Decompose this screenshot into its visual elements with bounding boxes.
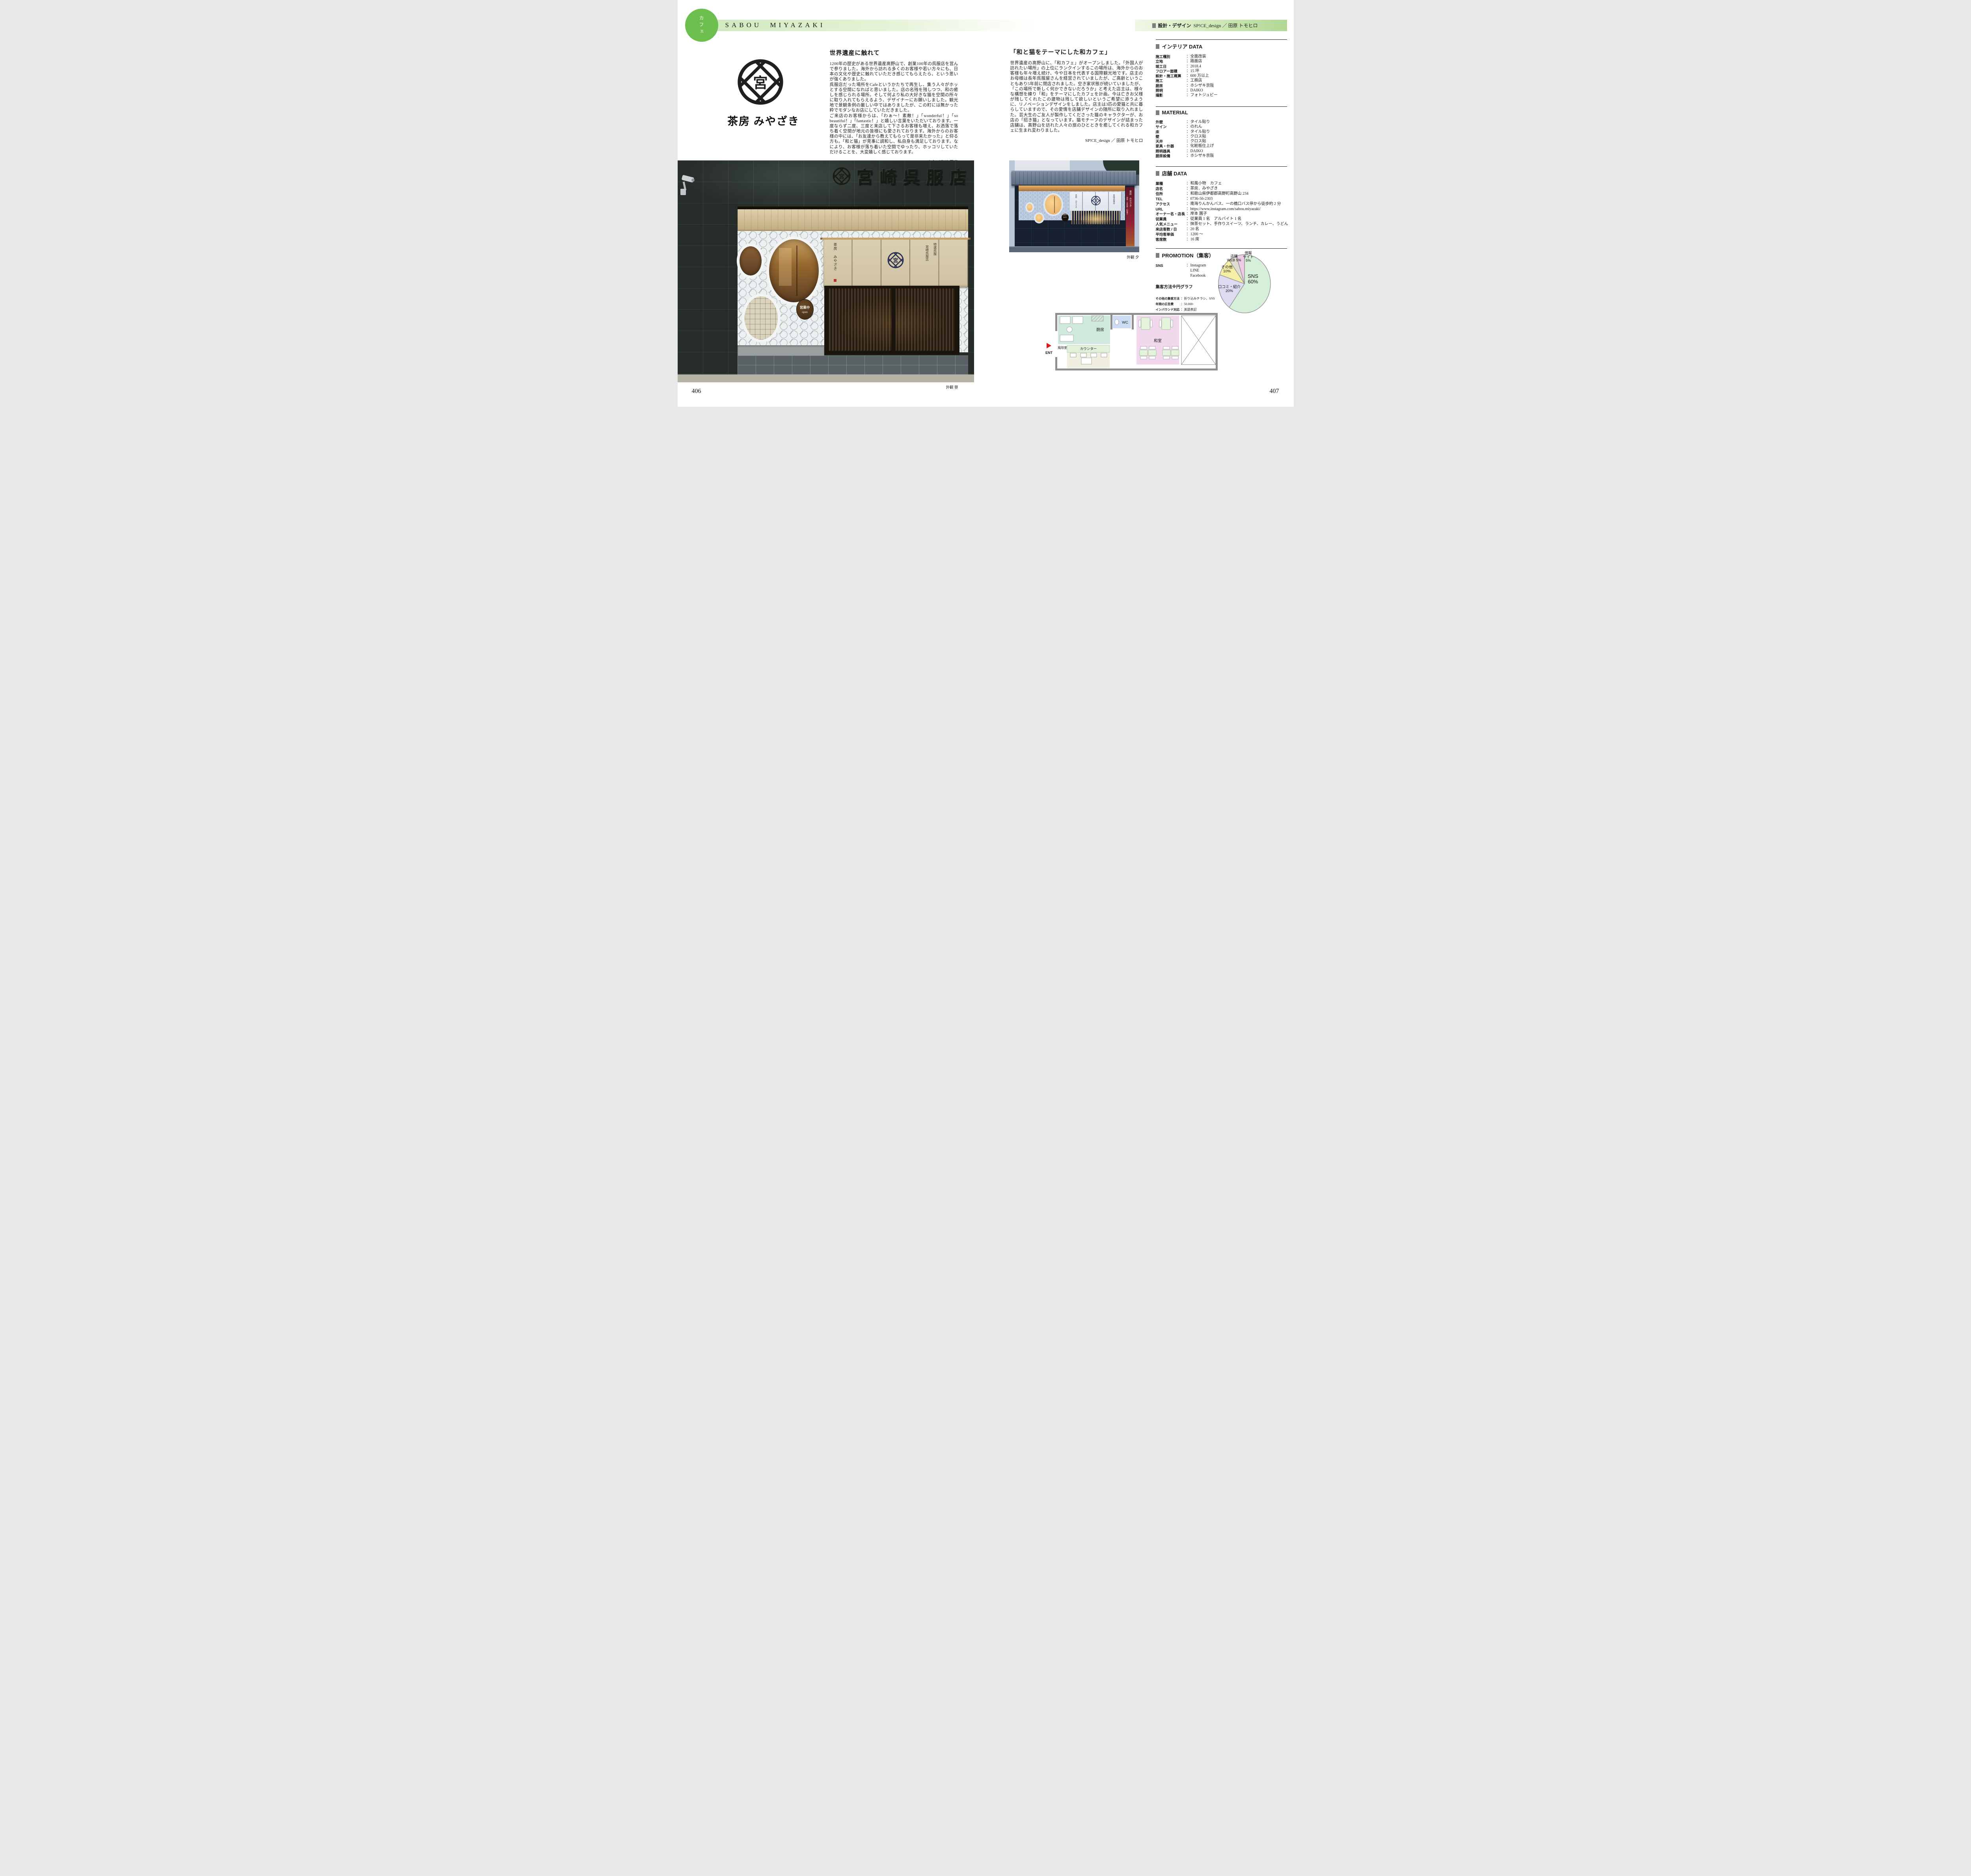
pie-slice-label: その他 10% [1221,266,1233,274]
data-row: アクセス：南海りんかんバス、一の橋口バス停から徒歩約 2 分 [1156,202,1287,207]
interior-data-heading: インテリア DATA [1156,43,1287,50]
data-row: 施工種別：全面改装 [1156,54,1287,59]
data-row: 年間の広告費：50.000- [1156,301,1219,307]
interior-data-rows: 施工種別：全面改装立地：路面店竣工日：2018.4フロアー面積：15 坪設計・施… [1156,54,1287,98]
storefront-sign-text: 宮崎呉服店 [857,164,973,188]
owner-article-title: 世界遺産に触れて [830,48,958,57]
row-value: 50.000- [1184,301,1194,307]
row-value: のれん [1190,125,1202,129]
row-label: TEL [1156,197,1187,202]
floor-plan: 厨房 WC カウンター 和室 風除室 ENT [1045,311,1230,378]
security-camera-icon [680,173,698,197]
miyazaki-crest-icon [887,251,904,269]
storefront-day-photo: 宮崎呉服店 営業中 open 茶房 みやざき 特選呉服 宮崎呉服店 [678,160,974,382]
row-label: フロアー面積 [1156,69,1187,74]
owner-article-body: 1200年の歴史がある世界遺産高野山で、創業100年の呉服店を営んで参りました。… [830,61,958,155]
row-value: ホシザキ京阪 [1190,84,1214,88]
red-banner: 茶房 みやざき ・抹茶・日本茶・和菓子 [1126,187,1135,249]
row-value: 0736-56-2303 [1190,197,1213,202]
row-label: 従業員 [1156,217,1187,222]
interior-data-section: インテリア DATA 施工種別：全面改装立地：路面店竣工日：2018.4フロアー… [1156,39,1287,98]
noren-text-left: 茶房 みやざき [833,243,838,285]
row-label: その他の集客方法 [1156,296,1181,301]
data-row: TEL：0736-56-2303 [1156,197,1287,202]
section-marker-icon [1156,110,1159,115]
data-row: 人気メニュー：抹茶セット、手作りスイーツ、ランチ、カレー、うどん [1156,222,1287,227]
day-photo-caption: 外観 昼 [927,384,958,390]
pie-slice-label: 店舗 WEB 5% [1227,255,1241,262]
row-value: 2018.4 [1190,64,1202,69]
row-value: 15 坪 [1190,69,1200,74]
designer-article-title: 「和と猫をテーマにした和カフェ」 [1010,48,1143,56]
noren-curtain: 茶房 みやざき 宮崎呉服店 [1070,192,1122,211]
row-value: 路面店 [1190,59,1202,64]
data-row: 撮影：フォトジュピー [1156,93,1287,98]
street [1009,246,1139,252]
row-value: 南海りんかんバス、一の橋口バス停から徒歩約 2 分 [1190,202,1281,207]
shop-data-rows: 業種：和風小物 カフェ店名：茶房．みやざき住所：和歌山県伊都郡高野町高野山 23… [1156,181,1287,242]
glowing-round-window-large [1043,193,1063,216]
row-label: 来店客数 / 日 [1156,227,1187,232]
plan-label-kitchen: 厨房 [1096,327,1104,332]
credit-label: 設計・デザイン [1158,22,1191,29]
data-row: 業種：和風小物 カフェ [1156,181,1287,186]
row-value: クロス貼 [1190,134,1206,139]
row-label: 設計・施工概算 [1156,74,1187,78]
noren-text-right: 宮崎呉服店 [1112,194,1115,209]
row-value: フォトジュピー [1190,93,1218,98]
pie-slice-label: SNS 60% [1248,274,1258,285]
list-item: Facebook [1190,274,1206,279]
material-section: MATERIAL 外壁：タイル貼りサイン：のれん床：タイル貼り壁：クロス貼天井：… [1156,106,1287,158]
brand-name: 茶房 みやざき [720,113,807,128]
section-marker-icon [1156,171,1159,176]
row-label: 立地 [1156,59,1187,64]
shop-data-heading: 店舗 DATA [1156,169,1287,177]
row-label: 人気メニュー [1156,222,1187,227]
data-row: 天井：クロス貼 [1156,139,1287,144]
row-label: 店名 [1156,186,1187,192]
promotion-heading: PROMOTION（集客） [1156,251,1219,259]
row-label: 厨房 [1156,84,1187,88]
section-marker-icon [1152,23,1156,28]
sidewalk [678,374,974,382]
data-row: URL：https://www.instagram.com/sabou.miya… [1156,207,1287,212]
data-row: 客席数：16 席 [1156,237,1287,242]
row-label: 照明器具 [1156,149,1187,154]
row-value: タイル貼り [1190,120,1210,125]
glowing-lattice-door [1071,211,1120,224]
row-value: DAIKO [1190,149,1203,154]
row-label: 外壁 [1156,120,1187,125]
paragraph: 世界遺産の高野山に、「和カフェ」がオープンしました。「外国人が訪れたい場所」の上… [1010,61,1143,133]
plan-label-tatami: 和室 [1154,338,1162,343]
row-value: https://www.instagram.com/sabou.miyazaki… [1190,207,1261,212]
glowing-round-window-small [1025,202,1034,212]
row-label: 客席数 [1156,237,1187,242]
open-sign: 営業中 open [796,299,814,320]
list-item: Instagram [1190,263,1206,268]
row-label: 施工種別 [1156,54,1187,59]
noren-text-right-2: 宮崎呉服店 [925,245,930,283]
row-value: DAIKO [1190,88,1203,93]
sns-row: SNS ： InstagramLINEFacebook [1156,263,1219,278]
designer-article-byline: SP!CE_design ／ 田原 トモヒロ [1010,137,1143,143]
plan-label-windbreak: 風除室 [1058,346,1067,350]
row-value: 1200 ～ [1190,232,1203,237]
chart-note: 集客方法※円グラフ [1156,284,1219,290]
row-value: 岸本 園子 [1190,212,1207,217]
storefront-dusk-photo: 宮崎呉服店 営業中 open 茶房 みやざき 宮崎呉服店 茶房 みやざき ・抹茶… [1009,160,1139,252]
row-value: 抹茶セット、手作りスイーツ、ランチ、カレー、うどん [1190,222,1288,227]
section-marker-icon [1156,253,1159,258]
row-value: 和風小物 カフェ [1190,181,1222,186]
miyazaki-crest-icon [832,167,851,186]
section-marker-icon [1156,44,1159,49]
row-value: タイル貼り [1190,130,1210,134]
data-row: その他の集客方法：折り込みチラシ、SNS [1156,296,1219,301]
data-row: 照明器具：DAIKO [1156,149,1287,154]
material-rows: 外壁：タイル貼りサイン：のれん床：タイル貼り壁：クロス貼天井：クロス貼家具・什器… [1156,120,1287,158]
row-value: クロス貼 [1190,139,1206,144]
tile-pavement [738,355,968,374]
row-label: 厨房設備 [1156,154,1187,158]
plan-label-entrance: ENT [1045,351,1053,355]
page-number-left: 406 [692,388,701,395]
row-value: 折り込みチラシ、SNS [1184,296,1215,301]
miyazaki-crest-icon [736,58,785,106]
tiled-roof [1012,171,1136,186]
plan-label-wc: WC [1122,320,1128,325]
data-row: 厨房設備：ホシザキ京阪 [1156,154,1287,158]
row-label: 天井 [1156,139,1187,144]
data-row: 外壁：タイル貼り [1156,120,1287,125]
dusk-photo-caption: 外観 夕 [1109,254,1139,260]
row-label: 業種 [1156,181,1187,186]
row-label: 平均客単価 [1156,232,1187,237]
round-window-medium [742,294,781,342]
page-number-right: 407 [1270,388,1279,395]
noren-text-right-1: 特選呉服 [933,243,937,274]
data-row: 立地：路面店 [1156,59,1287,64]
row-value: 16 席 [1190,237,1200,242]
row-label: 施工 [1156,78,1187,83]
row-value: 全面改装 [1190,54,1206,59]
row-value: 茶房．みやざき [1190,186,1218,192]
row-label: 年間の広告費 [1156,301,1181,307]
noren-text-left: 茶房 みやざき [1075,194,1077,209]
data-row: フロアー面積：15 坪 [1156,69,1287,74]
data-row: 厨房：ホシザキ京阪 [1156,84,1287,88]
row-value: 従業員 1 名 アルバイト 1 名 [1190,217,1242,222]
round-window-small [737,244,764,278]
data-row: 竣工日：2018.4 [1156,64,1287,69]
storefront-bay: 営業中 open 茶房 みやざき 特選呉服 宮崎呉服店 [738,207,968,382]
data-row: 床：タイル貼り [1156,130,1287,134]
data-row: 施工：工務店 [1156,78,1287,83]
row-label: 住所 [1156,192,1187,197]
row-label: 照明 [1156,88,1187,93]
paragraph: 1200年の歴史がある世界遺産高野山で、創業100年の呉服店を営んで参りました。… [830,61,958,82]
dusk-bay: 営業中 open 茶房 みやざき 宮崎呉服店 [1019,186,1125,224]
design-credit: 設計・デザイン SP!CE_design ／ 田原 トモヒロ [1152,22,1258,29]
round-window-large [766,236,822,305]
designer-article: 「和と猫をテーマにした和カフェ」 世界遺産の高野山に、「和カフェ」がオープンしま… [1010,48,1143,143]
storefront-signage: 宮崎呉服店 [832,165,973,187]
row-value: 化粧板仕上げ [1190,144,1214,149]
plan-label-counter: カウンター [1080,347,1097,351]
designer-article-body: 世界遺産の高野山に、「和カフェ」がオープンしました。「外国人が訪れたい場所」の上… [1010,61,1143,133]
banner-subtext: ・抹茶・日本茶・和菓子 [1126,195,1129,246]
row-value: 和歌山県伊都郡高野町高野山 234 [1190,192,1249,197]
row-label: 竣工日 [1156,64,1187,69]
row-value: ホシザキ京阪 [1190,154,1214,158]
row-label: 家具・什器 [1156,144,1187,149]
row-label: 撮影 [1156,93,1187,98]
row-label: URL [1156,207,1187,212]
data-row: 住所：和歌山県伊都郡高野町高野山 234 [1156,192,1287,197]
row-value: 20 名 [1190,227,1200,232]
open-sign: 営業中 open [1062,214,1069,221]
paragraph: ご来店のお客様からは、「わぁ〜！素敵！」「wonderful！」「so beau… [830,114,958,155]
hanko-stamp-icon [834,279,836,282]
entrance-arrow-icon [1047,343,1051,348]
page-title: SABOU MIYAZAKI [725,21,825,29]
banner-text: 茶房 みやざき [1129,190,1132,238]
row-label: オーナー名・店長 [1156,212,1187,217]
promotion-pie-chart: SNS 60%口コミ・紹介 20%その他 10%店舗 WEB 5%情報 サイト … [1217,251,1272,315]
data-row: 来店客数 / 日：20 名 [1156,227,1287,232]
sns-values: InstagramLINEFacebook [1190,263,1206,278]
data-row: 壁：クロス貼 [1156,134,1287,139]
category-label: カフェ [698,15,705,35]
data-row: オーナー名・店長：岸本 園子 [1156,212,1287,217]
data-row: 店名：茶房．みやざき [1156,186,1287,192]
material-heading: MATERIAL [1156,110,1287,115]
credit-value: SP!CE_design ／ 田原 トモヒロ [1194,22,1258,29]
wooden-lattice-door [824,286,959,355]
data-row: 照明：DAIKO [1156,88,1287,93]
row-label: アクセス [1156,202,1187,207]
miyazaki-crest-icon [1091,195,1101,206]
row-value: 工務店 [1190,78,1202,83]
data-row: 設計・施工概算：600 万以上 [1156,74,1287,78]
pie-slice-label: 口コミ・紹介 20% [1218,285,1241,294]
pie-slice-label: 情報 サイト 5% [1243,251,1254,263]
row-label: サイン [1156,125,1187,129]
data-row: 従業員：従業員 1 名 アルバイト 1 名 [1156,217,1287,222]
eave [738,207,968,209]
owner-article: 世界遺産に触れて 1200年の歴史がある世界遺産高野山で、創業100年の呉服店を… [830,48,958,165]
data-row: 平均客単価：1200 ～ [1156,232,1287,237]
noren-curtain: 茶房 みやざき 特選呉服 宮崎呉服店 [823,240,968,287]
row-label: 壁 [1156,134,1187,139]
data-row: サイン：のれん [1156,125,1287,129]
category-tab: カフェ [685,9,718,42]
row-label: 床 [1156,130,1187,134]
shop-data-section: 店舗 DATA 業種：和風小物 カフェ店名：茶房．みやざき住所：和歌山県伊都郡高… [1156,166,1287,242]
paragraph: 呉服店だった場所をCafeというかたちで再生し、集う人々がホッとする空間になれば… [830,82,958,114]
wood-soffit [738,209,968,231]
glowing-round-window-medium [1034,212,1044,223]
glowing-soffit [1019,186,1125,191]
list-item: LINE [1190,268,1206,274]
row-value: 600 万以上 [1190,74,1209,78]
data-row: 家具・什器：化粧板仕上げ [1156,144,1287,149]
magazine-spread: カフェ SABOU MIYAZAKI 設計・デザイン SP!CE_design … [678,0,1294,407]
